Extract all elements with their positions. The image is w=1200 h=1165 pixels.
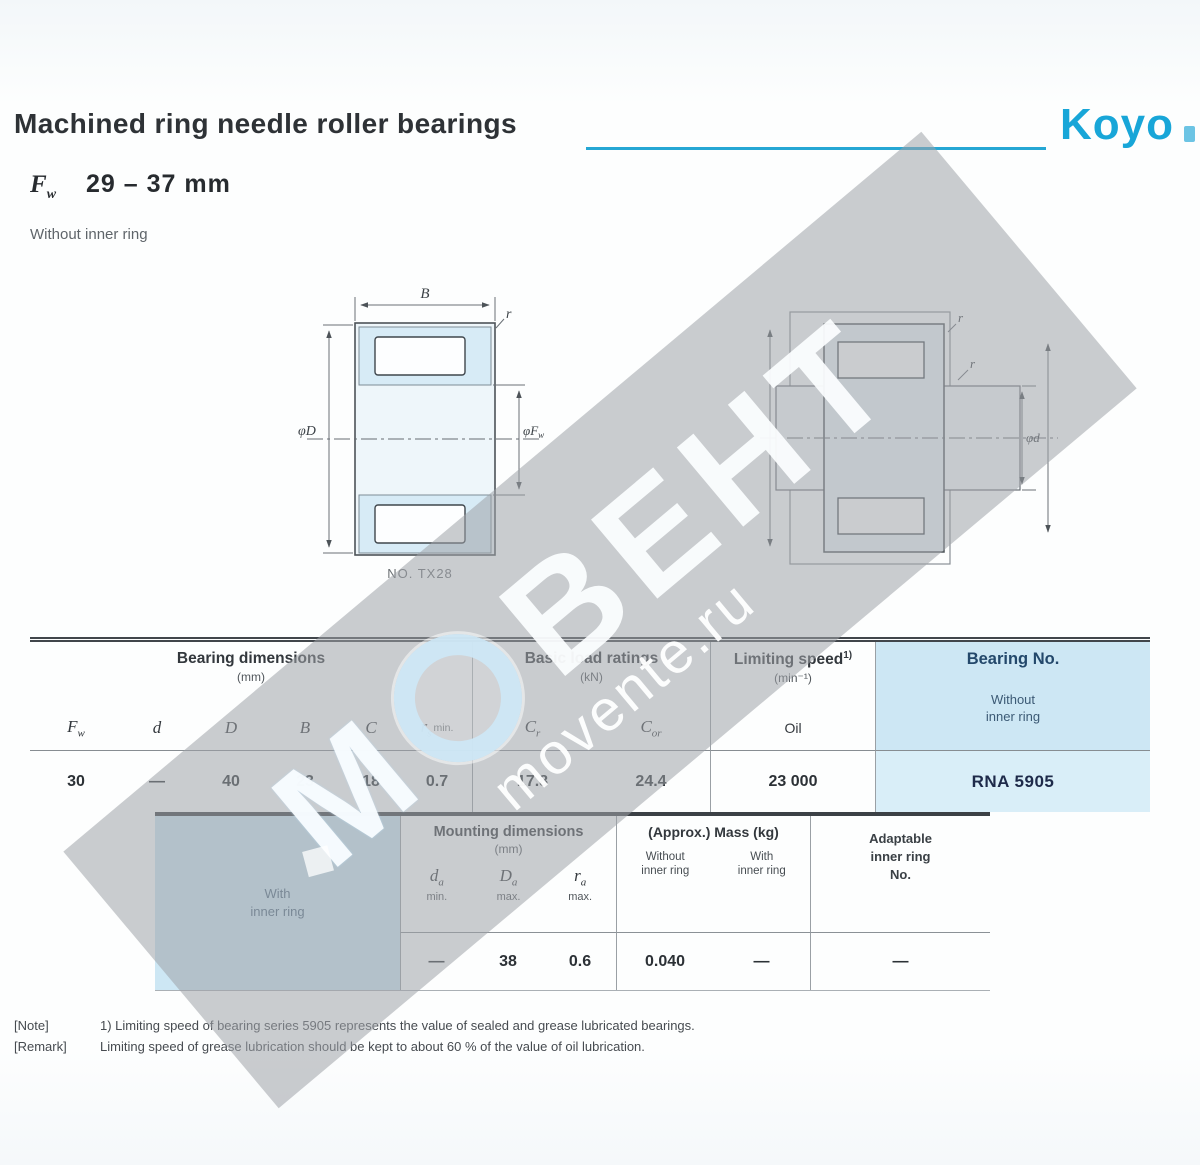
col-D-symbol: D [192,706,270,750]
label-r1: r [958,310,964,325]
col-fw-symbol: Fw [30,706,122,750]
cell-mass-with-value: — [713,932,810,990]
col-Da-symbol: Da max. [473,866,545,903]
col-mass-without: Withoutinner ring [617,850,714,878]
remark-text: Limiting speed of grease lubrication sho… [100,1039,645,1054]
roller-bottom [375,505,465,543]
with-inner-ring-column: Withinner ring [155,816,400,990]
group-mounting-dimensions: Mounting dimensions (mm) da min. Da max.… [400,816,616,932]
mass-subcolumns: Withoutinner ring Withinner ring [617,850,810,878]
cell-cr-value: 17.8 [472,750,592,812]
bearing-no-subtitle: Withoutinner ring [986,691,1040,725]
cell-speed-value: 23 000 [710,750,875,812]
group-title: Limiting speed1) [734,650,852,669]
cell-d-value: — [122,750,192,812]
page-title: Machined ring needle roller bearings [14,108,517,140]
subtitle: Without inner ring [30,226,148,243]
bore-range-line: Fw29 – 37 mm [30,170,231,203]
remark-label: [Remark] [14,1039,100,1054]
col-C-symbol: C [340,706,402,750]
cell-da-value: — [400,932,472,990]
col-da-symbol: da min. [401,866,473,903]
col-d-symbol: d [122,706,192,750]
col-cor-symbol: Cor [592,706,710,750]
cell-ra-value: 0.6 [544,932,616,990]
col-rs-symbol: rsmin. [402,706,472,750]
figure-caption: NO. TX28 [330,566,510,581]
bearing-cross-section-figure: B r φD φFw [295,285,555,585]
col-B-symbol: B [270,706,340,750]
dim-line-Fw [493,385,525,495]
group-title: Mounting dimensions [434,824,584,840]
roller-top [375,337,465,375]
label-d: φd [1026,430,1040,445]
group-unit: (min⁻¹) [774,671,812,685]
col-oil-symbol: Oil [710,706,875,750]
cell-fw-value: 30 [30,750,122,812]
header-rule [586,147,1046,150]
footnotes: [Note] 1) Limiting speed of bearing seri… [14,1018,1164,1060]
label-fw: φFw [523,423,544,440]
label-outer-dia: φD [298,424,316,439]
group-unit: (kN) [580,670,603,684]
cell-C-value: 18 [340,750,402,812]
cell-rs-value: 0.7 [402,750,472,812]
r-leader [496,319,504,328]
mounted-bearing-figure: r r φd [760,298,1060,578]
col-cr-symbol: Cr [472,706,592,750]
note-line: [Note] 1) Limiting speed of bearing seri… [14,1018,1164,1033]
note-label: [Note] [14,1018,100,1033]
col-ra-symbol: ra max. [544,866,616,903]
cell-Da-value: 38 [472,932,544,990]
group-adaptable-inner-ring: Adaptable inner ring No. [810,816,990,932]
bearing-no-column-header: Bearing No. Withoutinner ring [875,642,1150,750]
group-limiting-speed: Limiting speed1) (min⁻¹) [710,642,875,706]
cell-bearing-no: RNA 5905 [875,750,1150,812]
r-leader-2 [958,370,968,380]
group-title: Basic load ratings [525,650,659,668]
bearing-no-title: Bearing No. [967,650,1060,669]
group-title: (Approx.) Mass (kg) [648,824,779,840]
group-load-ratings: Basic load ratings (kN) [472,642,710,706]
group-title: Bearing dimensions [177,650,325,668]
cell-adaptable-value: — [810,932,990,990]
bore-range: 29 – 37 mm [86,170,231,198]
cell-D-value: 40 [192,750,270,812]
col-mass-with: Withinner ring [714,850,811,878]
note-text: 1) Limiting speed of bearing series 5905… [100,1018,695,1033]
r-leader-1 [948,324,956,332]
roller-top [838,342,924,378]
group-unit: (mm) [237,670,265,684]
label-B: B [420,286,429,302]
label-r: r [506,307,512,322]
remark-line: [Remark] Limiting speed of grease lubric… [14,1039,1164,1054]
group-unit: (mm) [495,842,523,856]
label-r2: r [970,356,976,371]
mounting-symbols: da min. Da max. ra max. [401,866,616,903]
bore-symbol: Fw [30,171,56,198]
dimensions-table: Bearing dimensions (mm) Basic load ratin… [30,637,1150,812]
roller-bottom [838,498,924,534]
cell-B-value: 23 [270,750,340,812]
group-bearing-dimensions: Bearing dimensions (mm) [30,642,472,706]
cell-cor-value: 24.4 [592,750,710,812]
mounting-table: Withinner ring Mounting dimensions (mm) … [155,812,990,991]
group-mass: (Approx.) Mass (kg) Withoutinner ring Wi… [616,816,810,932]
brand-logo: Koyo [1060,100,1174,150]
logo-mark [1184,126,1195,142]
cell-mass-without-value: 0.040 [616,932,713,990]
